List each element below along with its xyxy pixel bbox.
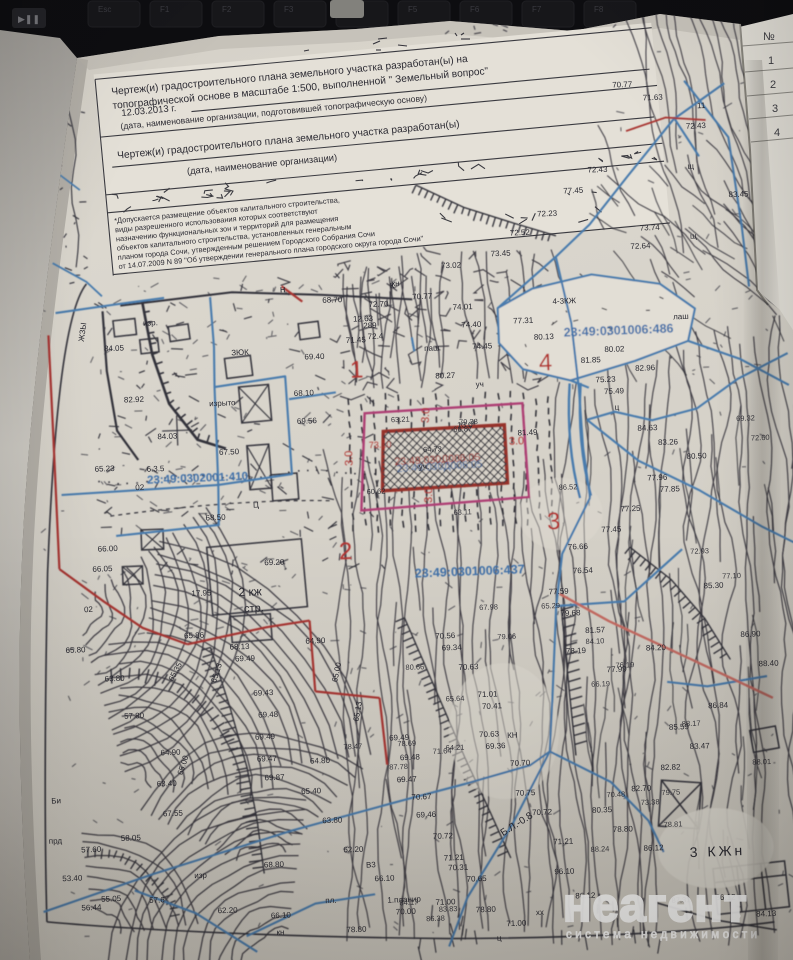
svg-text:64.90: 64.90 (305, 636, 326, 646)
svg-text:78.19: 78.19 (566, 646, 587, 656)
svg-text:60.62: 60.62 (366, 487, 385, 497)
svg-text:02: 02 (135, 483, 145, 492)
svg-text:69.40: 69.40 (304, 352, 325, 362)
svg-text:83.47: 83.47 (690, 741, 711, 751)
svg-text:хх: хх (536, 908, 544, 917)
svg-text:74.40: 74.40 (461, 320, 482, 330)
svg-text:55.05: 55.05 (101, 894, 122, 904)
svg-text:80.02: 80.02 (604, 344, 625, 354)
svg-text:70.72: 70.72 (532, 807, 553, 817)
svg-text:70.75: 70.75 (515, 788, 536, 798)
svg-text:70.77: 70.77 (612, 80, 633, 90)
svg-text:57.60: 57.60 (81, 845, 102, 855)
svg-text:70.63: 70.63 (458, 662, 479, 672)
svg-text:4: 4 (538, 349, 552, 376)
svg-text:73.74: 73.74 (640, 223, 661, 233)
svg-text:F1: F1 (160, 5, 170, 14)
svg-text:71.21: 71.21 (553, 837, 574, 847)
svg-text:ЗЮК: ЗЮК (231, 348, 249, 358)
svg-text:69.46: 69.46 (416, 810, 437, 820)
svg-text:68.13: 68.13 (229, 642, 250, 652)
svg-text:69.56: 69.56 (297, 416, 318, 426)
svg-text:70.77: 70.77 (412, 292, 433, 302)
svg-text:уч.: уч. (419, 462, 430, 471)
svg-text:F7: F7 (532, 5, 542, 14)
svg-text:69.43: 69.43 (253, 688, 274, 698)
svg-text:70.31: 70.31 (448, 863, 469, 873)
svg-text:78.81: 78.81 (663, 819, 682, 829)
svg-text:1: 1 (768, 55, 774, 67)
svg-text:74.01: 74.01 (452, 302, 473, 312)
svg-text:65.23: 65.23 (94, 464, 115, 474)
svg-text:изр: изр (194, 871, 207, 880)
svg-text:77.25: 77.25 (620, 504, 641, 514)
svg-text:65.40: 65.40 (301, 786, 322, 796)
svg-text:02: 02 (84, 605, 94, 614)
svg-text:68.10: 68.10 (294, 388, 315, 398)
svg-text:77.59: 77.59 (548, 587, 569, 597)
svg-text:67.55: 67.55 (163, 809, 184, 819)
svg-text:В3: В3 (366, 860, 377, 869)
svg-text:68.80: 68.80 (264, 860, 285, 870)
svg-text:4-3КЖ: 4-3КЖ (552, 296, 577, 306)
svg-text:11: 11 (697, 101, 706, 110)
svg-text:73.10: 73.10 (369, 439, 392, 450)
svg-text:3: 3 (772, 103, 778, 115)
svg-text:63.11: 63.11 (453, 507, 472, 517)
svg-text:17.95: 17.95 (191, 588, 212, 598)
svg-text:85.30: 85.30 (703, 581, 724, 591)
svg-text:69.48: 69.48 (258, 710, 279, 720)
svg-text:F2: F2 (222, 5, 232, 14)
svg-text:79.68: 79.68 (560, 608, 581, 618)
svg-text:57.6: 57.6 (149, 895, 165, 905)
svg-text:система недвижимости: система недвижимости (566, 929, 761, 941)
svg-text:78.80: 78.80 (346, 925, 367, 935)
svg-text:6.3.5: 6.3.5 (146, 464, 165, 474)
svg-text:76.66: 76.66 (568, 542, 589, 552)
svg-text:67.98: 67.98 (479, 602, 498, 612)
svg-text:82.70: 82.70 (631, 784, 652, 794)
svg-text:96.10: 96.10 (554, 867, 575, 877)
svg-text:73.38: 73.38 (641, 797, 660, 807)
svg-text:73.45: 73.45 (490, 249, 511, 259)
svg-text:71.64: 71.64 (433, 746, 452, 756)
svg-text:80.35: 80.35 (592, 805, 613, 815)
svg-text:66.05: 66.05 (92, 564, 113, 574)
svg-text:▶❚❚: ▶❚❚ (18, 14, 40, 25)
svg-text:86.84: 86.84 (708, 701, 729, 711)
svg-text:82.82: 82.82 (660, 762, 681, 772)
svg-text:77.85: 77.85 (660, 484, 681, 494)
svg-text:Би: Би (51, 796, 61, 805)
svg-text:87.78: 87.78 (389, 762, 408, 772)
svg-text:69.49: 69.49 (255, 732, 276, 742)
svg-text:65.64: 65.64 (445, 694, 464, 704)
svg-text:84.20: 84.20 (646, 643, 667, 653)
svg-text:F8: F8 (594, 5, 604, 14)
svg-text:58.05: 58.05 (121, 833, 142, 843)
svg-text:80.13: 80.13 (534, 332, 555, 342)
svg-text:77.31: 77.31 (513, 316, 534, 326)
svg-text:72.43: 72.43 (686, 121, 707, 131)
svg-text:86.52: 86.52 (558, 482, 577, 492)
svg-text:80.27: 80.27 (435, 371, 456, 381)
svg-text:62.20: 62.20 (217, 906, 238, 916)
svg-text:71.45: 71.45 (346, 335, 367, 345)
svg-text:F3: F3 (284, 5, 294, 14)
svg-text:68.50: 68.50 (205, 513, 226, 523)
svg-text:78.80: 78.80 (476, 905, 497, 915)
svg-text:66.00: 66.00 (97, 544, 118, 554)
svg-text:77.96: 77.96 (647, 473, 668, 483)
svg-text:69.48: 69.48 (400, 752, 421, 762)
svg-text:81.57: 81.57 (585, 625, 606, 635)
svg-text:1: 1 (349, 356, 363, 383)
svg-text:84.17: 84.17 (399, 898, 418, 908)
svg-text:ц: ц (614, 403, 619, 412)
svg-text:70.00: 70.00 (396, 907, 417, 917)
svg-text:84.63: 84.63 (637, 423, 658, 433)
svg-text:72.93: 72.93 (690, 546, 709, 556)
svg-text:F5: F5 (408, 5, 418, 14)
svg-text:80.50: 80.50 (686, 451, 707, 461)
svg-text:щ: щ (687, 161, 694, 170)
svg-text:78.47: 78.47 (343, 742, 362, 752)
svg-text:64.80: 64.80 (310, 756, 331, 766)
svg-text:70.56: 70.56 (435, 631, 456, 641)
svg-text:81.49: 81.49 (517, 428, 538, 438)
svg-text:70.65: 70.65 (466, 874, 487, 884)
svg-text:70.48: 70.48 (606, 790, 625, 800)
svg-text:69.36: 69.36 (485, 741, 506, 751)
svg-text:71.00: 71.00 (506, 918, 527, 928)
svg-text:69.87: 69.87 (264, 773, 285, 783)
svg-text:84.03: 84.03 (157, 431, 178, 441)
svg-text:76.19: 76.19 (615, 660, 634, 670)
svg-text:66.87: 66.87 (453, 424, 472, 434)
svg-text:уч: уч (475, 380, 484, 389)
svg-text:53.40: 53.40 (62, 873, 83, 883)
svg-text:69.49: 69.49 (235, 654, 256, 664)
svg-text:63.80: 63.80 (322, 815, 343, 825)
svg-text:кн: кн (276, 928, 284, 937)
svg-text:70.70: 70.70 (510, 758, 531, 768)
svg-text:79.06: 79.06 (497, 632, 516, 642)
svg-text:прд: прд (49, 836, 63, 846)
svg-text:67.50: 67.50 (219, 447, 240, 457)
svg-text:71.63: 71.63 (643, 93, 664, 103)
svg-text:63.80: 63.80 (104, 674, 125, 684)
svg-text:86.38: 86.38 (426, 914, 445, 924)
svg-text:3.0: 3.0 (343, 450, 356, 466)
svg-text:64.73: 64.73 (423, 444, 442, 454)
svg-text:3.0: 3.0 (420, 407, 433, 423)
svg-text:88.17: 88.17 (682, 719, 701, 729)
svg-text:изрыто: изрыто (209, 398, 236, 408)
svg-text:82.96: 82.96 (635, 363, 656, 373)
svg-text:пл.: пл. (325, 896, 337, 905)
svg-text:66.10: 66.10 (271, 910, 292, 920)
svg-text:77.45: 77.45 (601, 525, 622, 535)
svg-text:88.24: 88.24 (590, 844, 609, 854)
svg-text:77.10: 77.10 (722, 571, 741, 581)
svg-text:69.47: 69.47 (397, 775, 418, 785)
svg-text:74.45: 74.45 (472, 341, 493, 351)
svg-text:79.75: 79.75 (661, 787, 680, 797)
svg-text:65.29: 65.29 (541, 601, 560, 611)
svg-text:2: 2 (338, 538, 352, 565)
svg-text:4: 4 (774, 127, 780, 139)
svg-text:65.86: 65.86 (184, 631, 205, 641)
svg-text:75.49: 75.49 (604, 386, 625, 396)
svg-text:66.19: 66.19 (591, 679, 610, 689)
svg-text:75.23: 75.23 (595, 375, 616, 385)
svg-text:76.54: 76.54 (573, 566, 594, 576)
svg-text:65.80: 65.80 (65, 645, 86, 655)
svg-text:80.66: 80.66 (405, 662, 424, 672)
svg-text:56.44: 56.44 (81, 903, 102, 913)
svg-text:70.63: 70.63 (479, 729, 500, 739)
svg-text:Esc: Esc (98, 5, 111, 14)
svg-text:71.21: 71.21 (444, 853, 465, 863)
svg-text:Ц: Ц (253, 500, 259, 509)
svg-text:57.80: 57.80 (124, 711, 145, 721)
svg-text:паш: паш (424, 343, 440, 353)
svg-text:2 кж: 2 кж (238, 584, 262, 599)
svg-text:83.26: 83.26 (658, 437, 679, 447)
svg-text:72.52: 72.52 (510, 228, 531, 238)
svg-text:2: 2 (770, 79, 776, 91)
svg-text:лаш: лаш (673, 312, 689, 322)
svg-text:64.90: 64.90 (160, 748, 181, 758)
svg-text:62.20: 62.20 (343, 845, 364, 855)
svg-text:72.4: 72.4 (368, 332, 384, 342)
svg-text:неагент: неагент (563, 878, 748, 931)
svg-text:3 КЖн: 3 КЖн (689, 842, 745, 860)
svg-text:86.12: 86.12 (643, 843, 664, 853)
svg-text:КН: КН (507, 731, 518, 740)
svg-text:63.40: 63.40 (157, 779, 178, 789)
svg-text:3.0: 3.0 (423, 488, 435, 503)
svg-text:84.05: 84.05 (104, 343, 125, 353)
svg-text:66.10: 66.10 (374, 873, 395, 883)
svg-text:72.70: 72.70 (368, 299, 389, 309)
svg-text:69.47: 69.47 (257, 754, 278, 764)
svg-text:78.80: 78.80 (613, 824, 634, 834)
svg-text:69.34: 69.34 (442, 643, 463, 653)
svg-text:78.69: 78.69 (397, 739, 416, 749)
svg-text:84.10: 84.10 (585, 636, 604, 646)
svg-text:289: 289 (363, 321, 377, 331)
svg-text:72.43: 72.43 (587, 165, 608, 175)
svg-text:68.70: 68.70 (322, 295, 343, 305)
svg-text:71.01: 71.01 (477, 689, 498, 699)
svg-text:стр.: стр. (244, 602, 264, 615)
svg-text:№: № (763, 31, 775, 43)
svg-text:70.41: 70.41 (482, 701, 503, 711)
svg-text:82.92: 82.92 (124, 395, 145, 405)
svg-text:3: 3 (546, 508, 560, 535)
svg-text:70.72: 70.72 (433, 831, 454, 841)
svg-text:72.23: 72.23 (537, 209, 558, 219)
svg-text:изр.: изр. (143, 318, 158, 328)
svg-text:щ: щ (690, 231, 697, 240)
svg-text:63.21: 63.21 (391, 415, 410, 425)
svg-text:83.83: 83.83 (439, 904, 458, 914)
svg-text:77.45: 77.45 (563, 186, 584, 196)
svg-text:81.85: 81.85 (581, 355, 602, 365)
svg-text:70.67: 70.67 (411, 792, 432, 802)
svg-text:73.02: 73.02 (441, 260, 462, 270)
svg-text:72.64: 72.64 (630, 241, 651, 251)
svg-text:69.20: 69.20 (264, 557, 285, 567)
svg-text:F6: F6 (470, 5, 480, 14)
svg-text:ц: ц (497, 933, 502, 942)
